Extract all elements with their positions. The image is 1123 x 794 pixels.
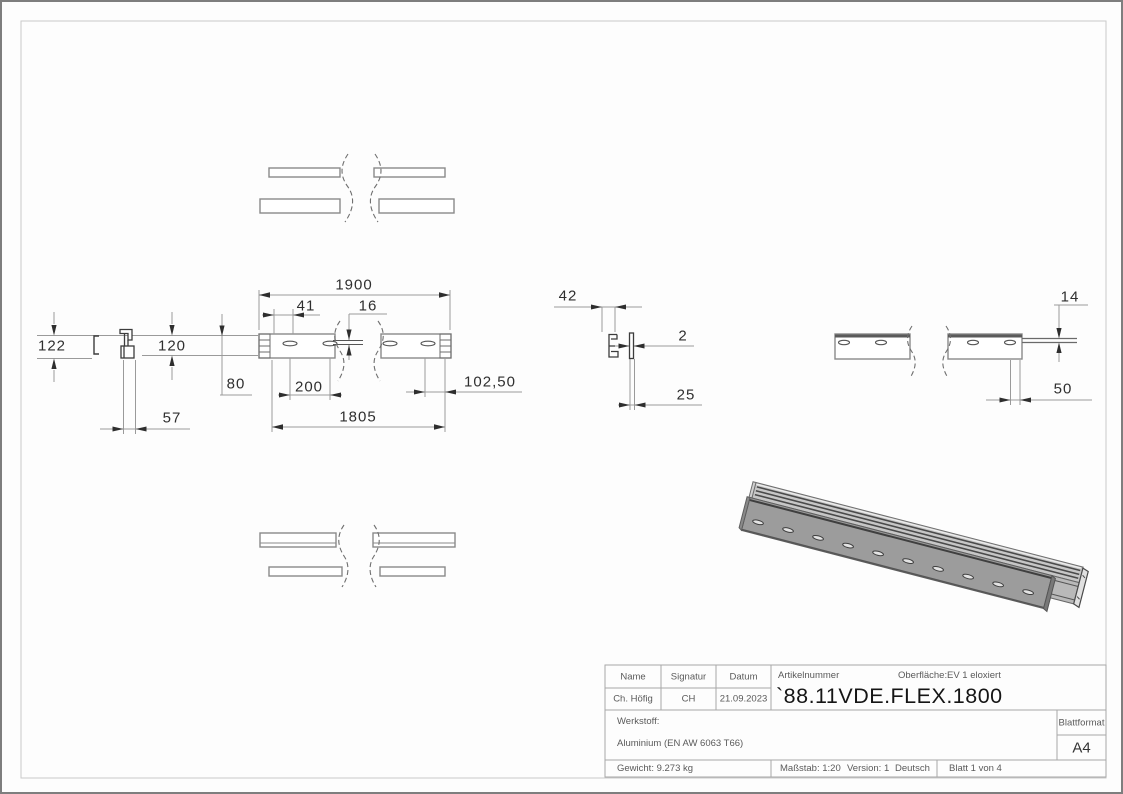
dim-end-distance: 102,50 — [464, 374, 516, 391]
sheet-format-value: A4 — [1072, 740, 1090, 757]
date-label: Datum — [730, 672, 758, 683]
dim-80: 80 — [227, 376, 246, 393]
language-value: Deutsch — [895, 763, 930, 774]
reference-bracket — [94, 336, 99, 354]
section-view-left — [37, 312, 258, 434]
material-value: Aluminium (EN AW 6063 T66) — [617, 738, 743, 749]
surface-label: Oberfläche: — [898, 670, 947, 681]
dim-hole-span: 1805 — [339, 409, 376, 426]
dim-slot-width: 16 — [359, 298, 378, 315]
dim-50: 50 — [1054, 381, 1073, 398]
dim-overall-length: 1900 — [335, 277, 372, 294]
material-label: Werkstoff: — [617, 716, 659, 727]
creation-date: 21.09.2023 — [720, 694, 768, 705]
article-number: `88.11VDE.FLEX.1800 — [776, 684, 1003, 709]
inner-frame — [21, 21, 1106, 778]
dim-57: 57 — [163, 410, 182, 427]
isometric-view — [738, 481, 1089, 619]
weight-value: Gewicht: 9.273 kg — [617, 763, 693, 774]
bottom-view — [260, 525, 455, 587]
version-value: Version: 1 — [847, 763, 889, 774]
dim-25: 25 — [677, 387, 696, 404]
top-view — [260, 154, 454, 222]
dim-thickness: 2 — [678, 328, 687, 345]
dim-hole-offset: 41 — [297, 298, 316, 315]
sheet-format-label: Blattformat — [1059, 718, 1105, 729]
signature-label: Signatur — [671, 672, 706, 683]
drawing-sheet: 1900 41 16 122 120 80 57 200 1805 102,50… — [0, 0, 1123, 794]
surface-value: EV 1 eloxiert — [947, 670, 1001, 681]
author-signature: CH — [682, 694, 696, 705]
profile-section-left — [120, 330, 134, 359]
author-name: Ch. Höfig — [613, 694, 653, 705]
article-number-label: Artikelnummer — [778, 670, 839, 681]
dim-hole-spacing: 200 — [295, 379, 323, 396]
dim-14: 14 — [1061, 289, 1080, 306]
dim-profile-height: 120 — [158, 338, 186, 355]
name-label: Name — [620, 672, 645, 683]
sheet-info: Blatt 1 von 4 — [949, 763, 1002, 774]
front-view — [259, 321, 451, 381]
dim-total-height: 122 — [38, 338, 66, 355]
scale-value: Maßstab: 1:20 — [780, 763, 841, 774]
dim-section-width: 42 — [559, 288, 578, 305]
